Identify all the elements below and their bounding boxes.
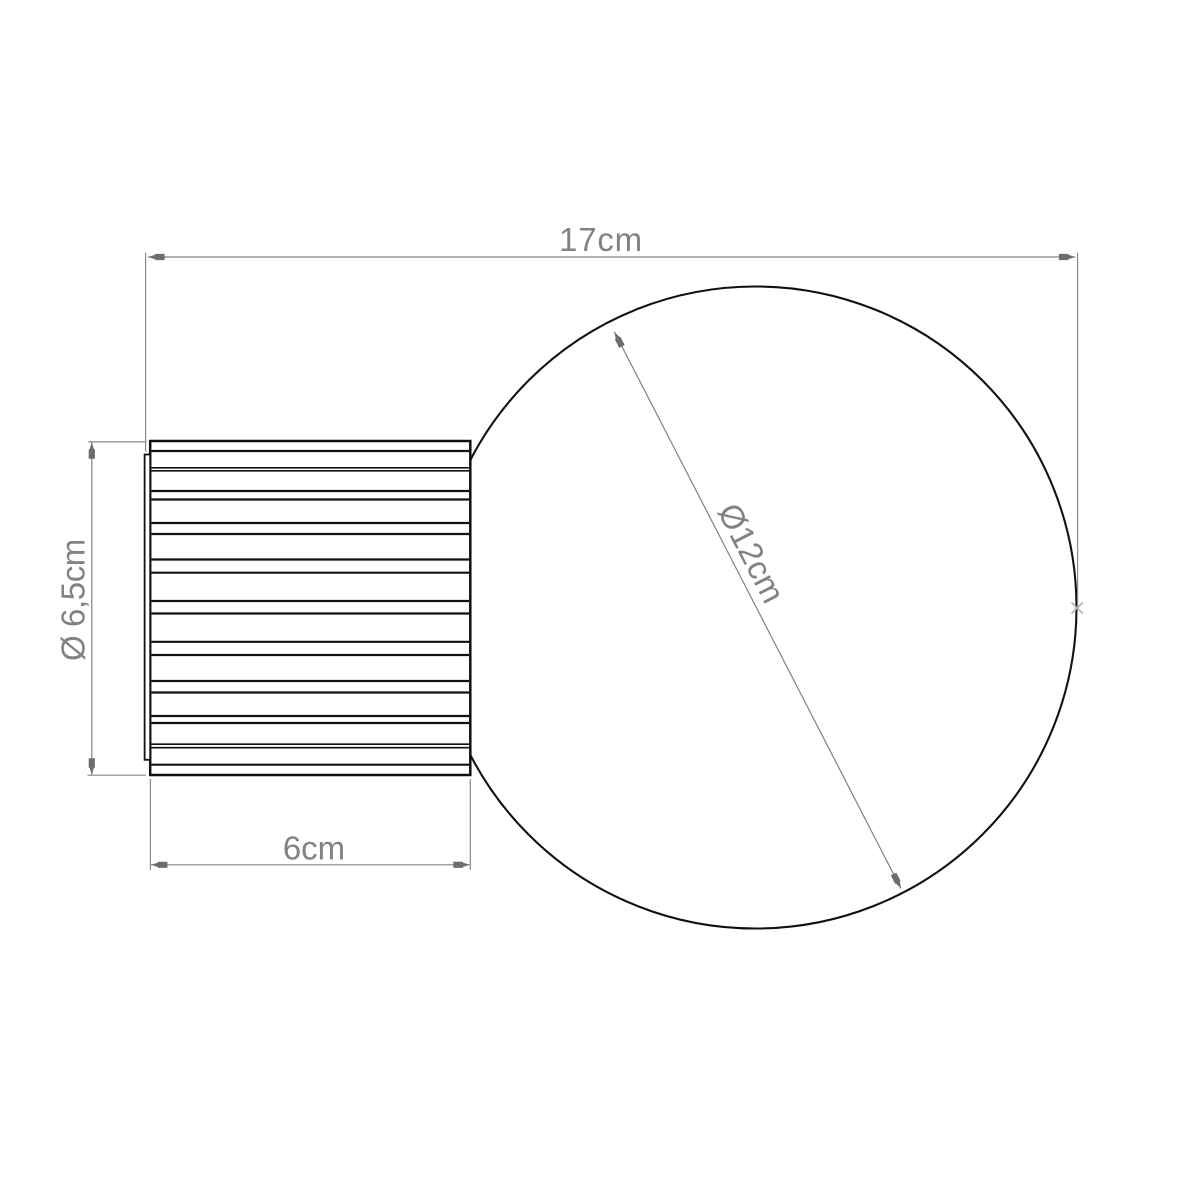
- svg-text:17cm: 17cm: [559, 221, 643, 258]
- svg-text:Ø 6,5cm: Ø 6,5cm: [55, 539, 92, 661]
- svg-text:6cm: 6cm: [283, 830, 345, 867]
